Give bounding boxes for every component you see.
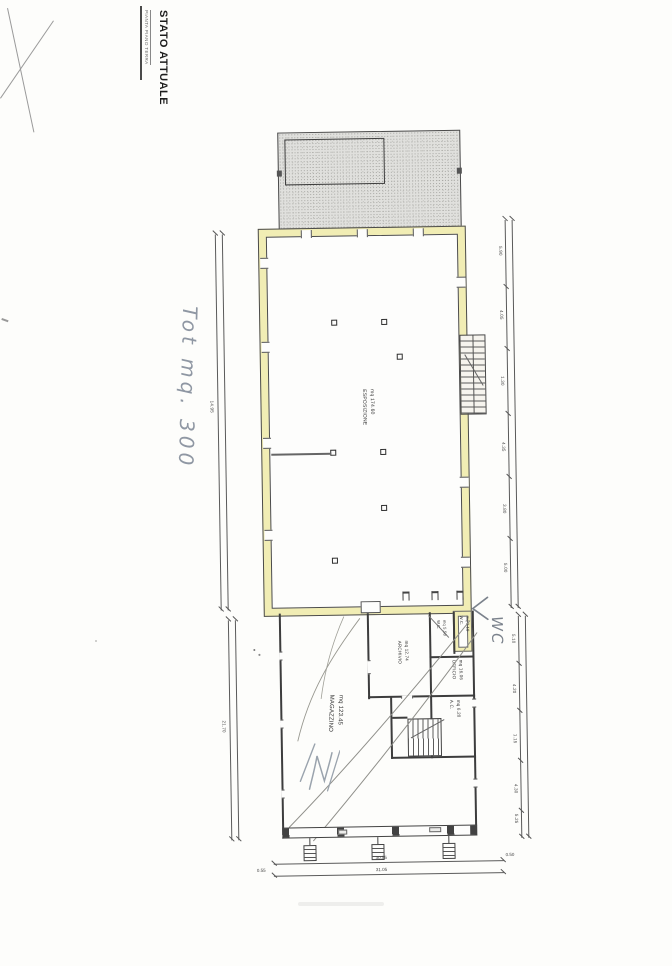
dimension-label: 1.30 [500, 376, 505, 386]
curve-stroke [286, 621, 473, 828]
dimension-label: 5.25 [514, 814, 519, 824]
wall-pier [277, 171, 282, 177]
window-sill-mark [456, 591, 463, 600]
column [397, 354, 403, 360]
sketch-curve-lines [280, 610, 484, 843]
dimension-label: 5.90 [498, 246, 503, 256]
window-opening [460, 477, 469, 488]
grate-symbol [303, 838, 316, 861]
scribble-stroke [327, 751, 341, 791]
window-opening [264, 530, 273, 541]
dimension-label: 4.35 [501, 442, 506, 452]
room-label-esposizione: ESPOSIZIONE mq 174.60 [359, 389, 375, 425]
room-name: ESPOSIZIONE [359, 389, 367, 425]
column [381, 319, 387, 325]
dimension-label: 3.80 [502, 504, 507, 514]
handwritten-wc-note: WC [488, 616, 506, 646]
dimension-label: 4.20 [512, 684, 517, 694]
dimension-label: 21.70 [221, 720, 226, 732]
column [332, 558, 338, 564]
grate-box [303, 845, 316, 861]
dimension-label: 14.95 [209, 401, 214, 413]
wall-pier [457, 168, 462, 174]
scan-streak [298, 902, 384, 906]
window-opening [263, 438, 272, 449]
column [380, 449, 386, 455]
window-opening [457, 277, 466, 288]
window-opening [260, 258, 269, 269]
curve-stroke [310, 632, 480, 841]
curve-stroke [296, 618, 362, 741]
scanned-floor-plan-sheet: { "sheet": { "caption": "PIANTA PIANO TE… [0, 0, 672, 960]
window-opening [413, 228, 424, 237]
dimension-line [518, 616, 522, 838]
room-area: mq 174.60 [367, 389, 375, 425]
courtyard-stippled-area [277, 130, 462, 230]
column [381, 505, 387, 511]
dimension-line [235, 620, 239, 840]
stair-divider [472, 336, 474, 414]
dimension-line [512, 220, 519, 608]
dimension-label: 30.55 [376, 855, 387, 860]
window-sill-mark [402, 592, 409, 601]
dimension-line [228, 620, 232, 840]
window-opening [261, 342, 270, 353]
grate-stem [309, 838, 311, 845]
courtyard-inner-outline [284, 138, 385, 186]
dimension-label: 0.50 [506, 852, 515, 857]
pencil-dot [258, 654, 260, 656]
grate-stem [377, 837, 379, 844]
grate-stem [448, 836, 450, 843]
dimension-label: 0.55 [257, 868, 266, 873]
arrow-stroke [473, 597, 488, 619]
wall-pier [470, 826, 477, 835]
external-staircase [459, 334, 486, 414]
dimension-label: 4.05 [499, 310, 504, 320]
dimension-line [274, 872, 504, 877]
dimension-line [222, 234, 229, 610]
window-opening [357, 229, 368, 238]
sill-note-box [429, 827, 441, 832]
window-sill-mark [431, 591, 438, 600]
dimension-label: 4.30 [513, 784, 518, 794]
handwritten-scribble-mark [296, 741, 341, 796]
window-opening [301, 230, 312, 239]
pencil-dot [253, 649, 255, 651]
dimension-label: 1.15 [513, 734, 518, 744]
grate-symbol [442, 836, 455, 859]
handwritten-arrow [467, 594, 489, 622]
window-opening [461, 557, 470, 568]
dimension-label: 31.05 [376, 867, 387, 872]
sill-note-box [338, 830, 347, 835]
dimension-line [525, 616, 529, 838]
scribble-stroke [309, 753, 333, 789]
grate-box [442, 843, 455, 859]
floor-plan: ESPOSIZIONE mq 174.60 ARCHIVIO mq 12.74 … [0, 0, 672, 966]
dimension-label: 5.00 [503, 563, 508, 573]
column [331, 320, 337, 326]
dimension-line [215, 235, 222, 611]
dimension-label: 5.10 [511, 634, 516, 644]
